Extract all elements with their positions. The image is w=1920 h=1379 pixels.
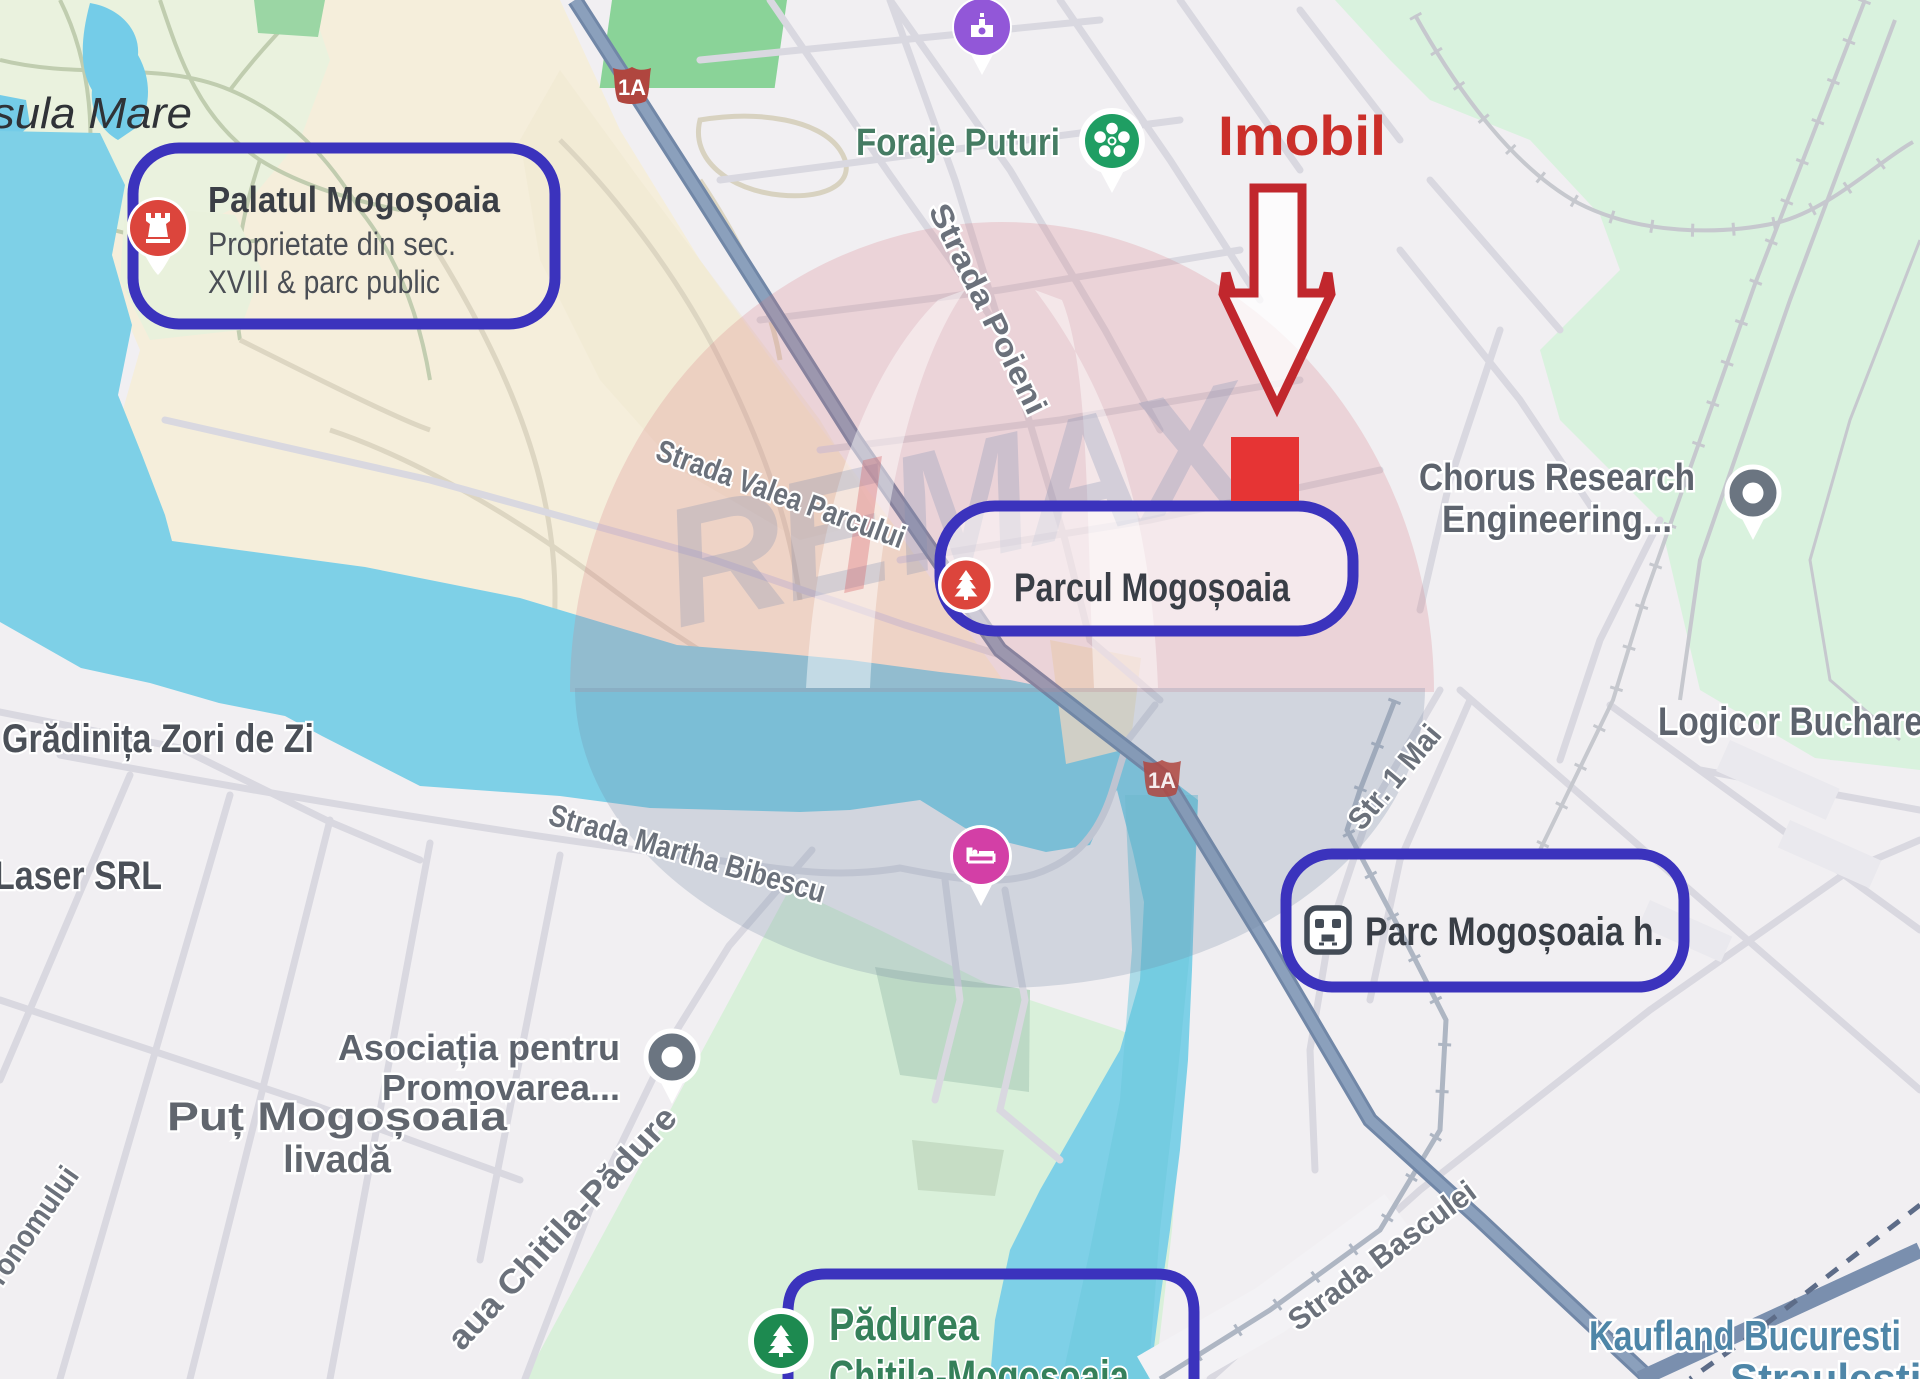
svg-text:Palatul Mogoșoaia: Palatul Mogoșoaia (208, 179, 501, 220)
svg-text:Engineering...: Engineering... (1442, 499, 1672, 541)
svg-text:Imobil: Imobil (1218, 104, 1386, 167)
svg-text:Parcul Mogoșoaia: Parcul Mogoșoaia (1014, 566, 1291, 610)
svg-text:1A: 1A (618, 75, 646, 100)
svg-text:Kaufland Bucuresti: Kaufland Bucuresti (1589, 1312, 1901, 1359)
svg-text:Laser SRL: Laser SRL (0, 854, 162, 898)
svg-text:Chorus Research: Chorus Research (1419, 457, 1695, 499)
svg-text:Logicor Buchare: Logicor Buchare (1658, 700, 1920, 744)
svg-text:Parc Mogoșoaia h.: Parc Mogoșoaia h. (1365, 910, 1663, 954)
svg-text:Pădurea: Pădurea (829, 1299, 980, 1350)
svg-text:Proprietate din sec.: Proprietate din sec. (208, 226, 456, 262)
svg-text:Asociația pentru: Asociația pentru (338, 1027, 620, 1069)
svg-text:livadă: livadă (283, 1139, 392, 1181)
svg-text:Foraje Puturi: Foraje Puturi (856, 122, 1060, 164)
svg-text:Straulesti: Straulesti (1730, 1355, 1920, 1379)
svg-text:sula Mare: sula Mare (0, 89, 192, 138)
svg-text:Puț Mogoșoaia: Puț Mogoșoaia (167, 1095, 508, 1139)
svg-text:1A: 1A (1148, 768, 1176, 793)
svg-text:Grădinița Zori de Zi: Grădinița Zori de Zi (2, 717, 314, 761)
svg-text:XVIII & parc public: XVIII & parc public (208, 264, 440, 300)
svg-text:Chitila-Mogoșoaia: Chitila-Mogoșoaia (829, 1351, 1130, 1379)
